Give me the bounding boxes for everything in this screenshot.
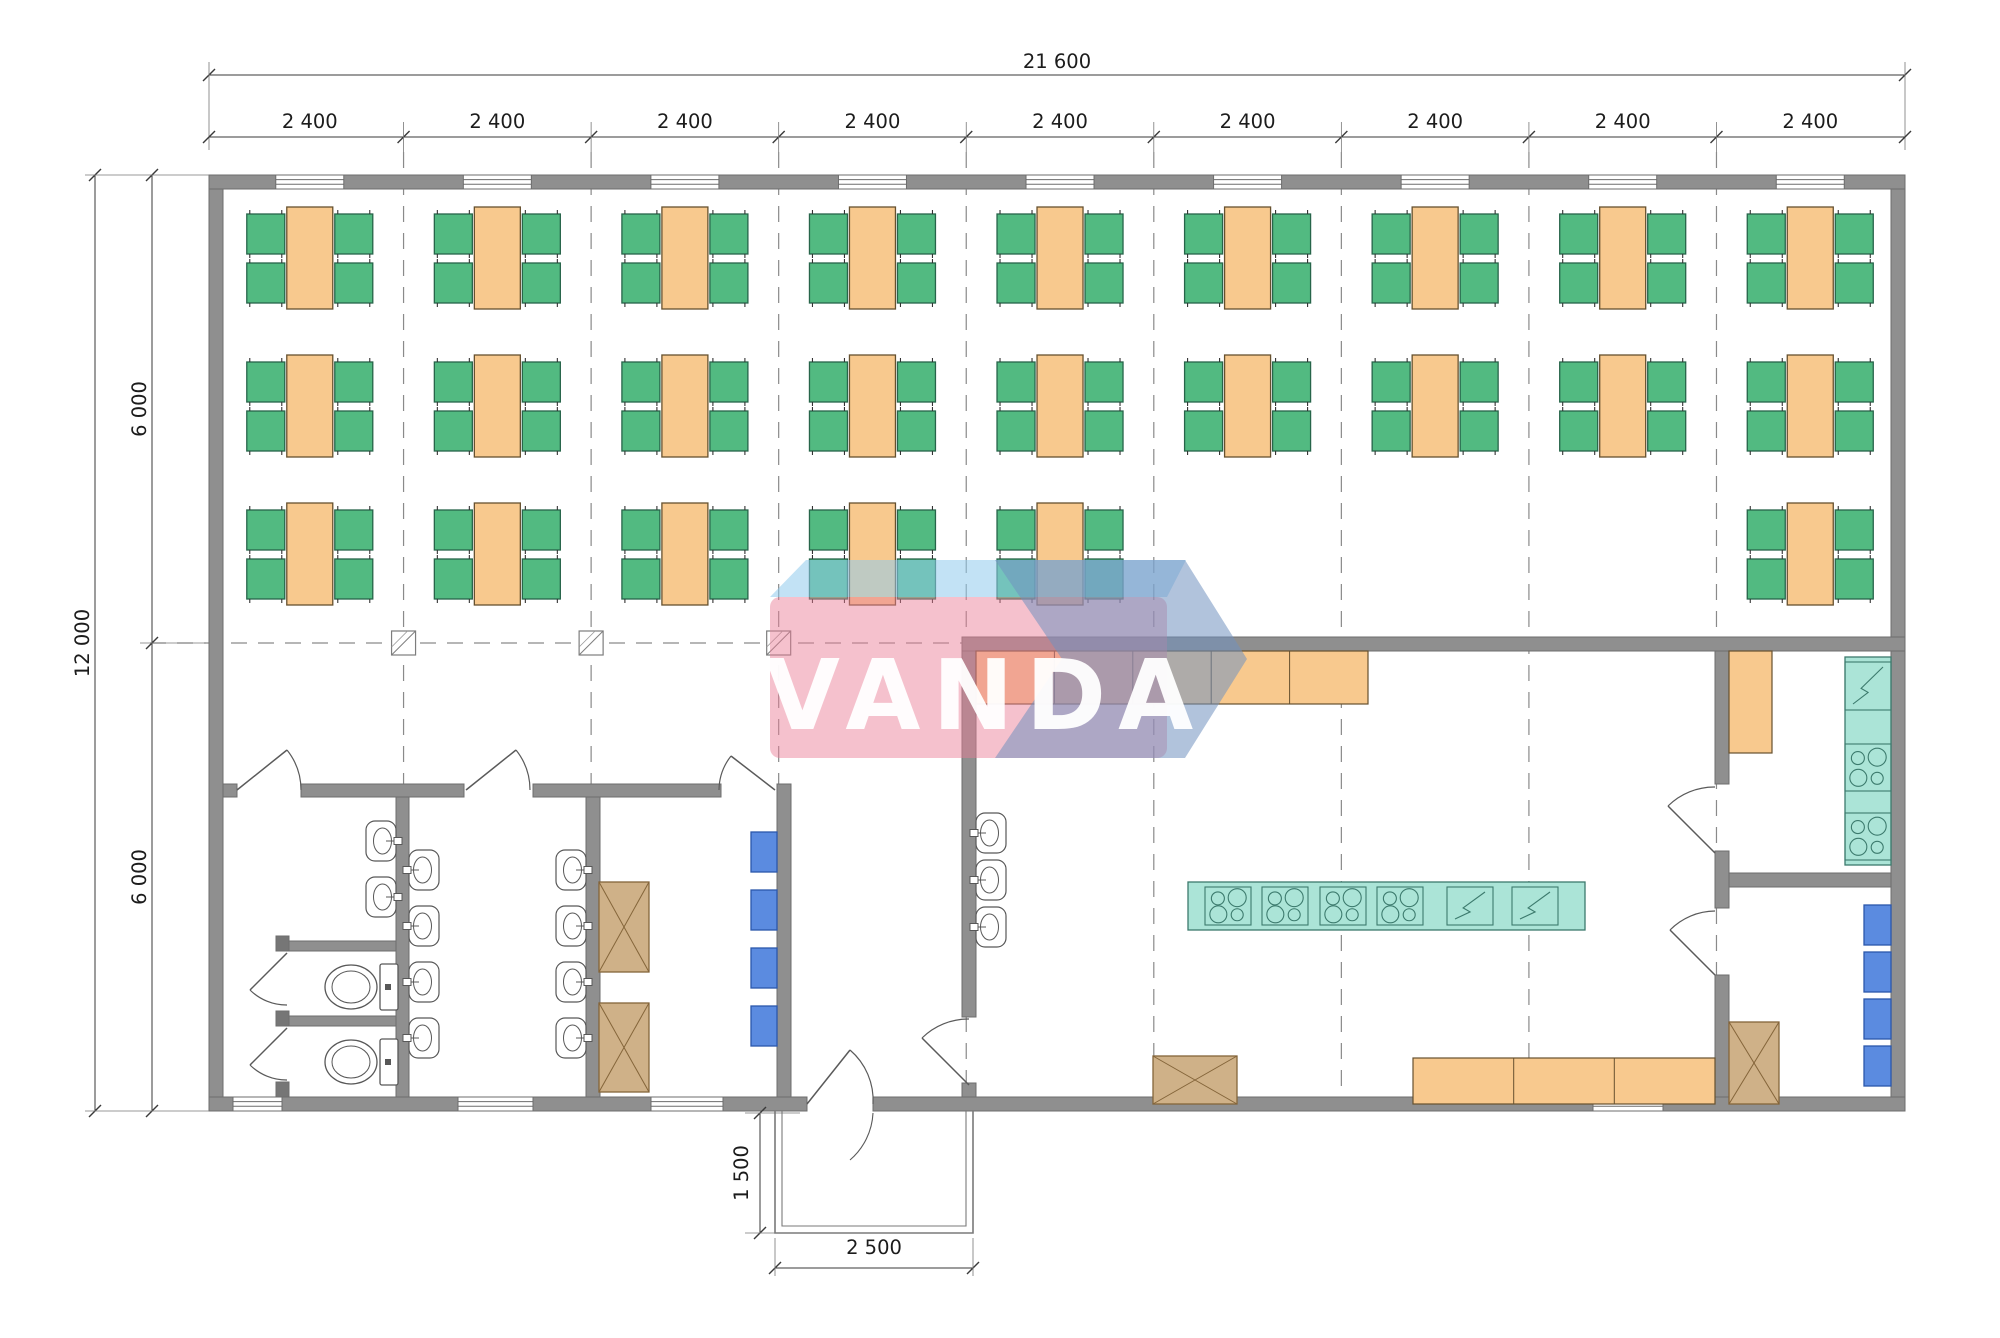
locker-icon (751, 948, 777, 988)
sink-faucet (403, 1035, 411, 1042)
chair-icon (1273, 214, 1311, 254)
door-leaf (250, 1028, 287, 1065)
sink-faucet (403, 979, 411, 986)
chair-icon (522, 510, 560, 550)
chair-icon (710, 263, 748, 303)
wall (282, 1016, 396, 1026)
chair-icon (997, 214, 1035, 254)
chair-icon (1185, 411, 1223, 451)
dining-table (1600, 207, 1646, 309)
chair-icon (1835, 362, 1873, 402)
chair-icon (247, 214, 285, 254)
dim-bay-label: 2 400 (1595, 110, 1651, 133)
chair-icon (1273, 411, 1311, 451)
entrance-porch (775, 1111, 973, 1233)
chair-icon (335, 510, 373, 550)
door-frame-cap (276, 1082, 289, 1097)
chair-icon (1747, 510, 1785, 550)
dim-bay-label: 2 400 (1407, 110, 1463, 133)
chair-icon (1560, 411, 1598, 451)
dim-lower-height: 6 000 (128, 849, 151, 905)
floor-plan-svg: 21 600 12 000 6 000 6 000 1 500 2 500 2 … (0, 0, 2000, 1338)
locker-icon (1864, 905, 1891, 945)
wall (223, 784, 237, 797)
dim-bay-label: 2 400 (469, 110, 525, 133)
chair-icon (897, 510, 935, 550)
door-frame-cap (276, 1011, 289, 1026)
chair-icon (1560, 362, 1598, 402)
dining-table (1787, 207, 1833, 309)
dining-table (1600, 355, 1646, 457)
chair-icon (1747, 411, 1785, 451)
chair-icon (434, 411, 472, 451)
sink-faucet (970, 830, 978, 837)
chair-icon (1185, 362, 1223, 402)
chair-icon (809, 214, 847, 254)
wall (209, 189, 223, 1097)
chair-icon (1835, 559, 1873, 599)
dining-table (662, 355, 708, 457)
locker-icon (751, 832, 777, 872)
toilet-flush (385, 1059, 391, 1065)
window (458, 1097, 533, 1111)
dim-bay-label: 2 400 (1220, 110, 1276, 133)
dim-upper-height: 6 000 (128, 381, 151, 437)
wall (282, 941, 396, 951)
door-leaf (1668, 806, 1715, 853)
dining-table (1225, 355, 1271, 457)
door-leaf (466, 750, 516, 790)
chair-icon (335, 263, 373, 303)
window (233, 1097, 282, 1111)
door-swing-arc (850, 1113, 873, 1160)
chair-icon (710, 214, 748, 254)
chair-icon (1372, 263, 1410, 303)
chair-icon (710, 411, 748, 451)
dining-table (1037, 503, 1083, 605)
dining-table (849, 207, 895, 309)
chair-icon (335, 214, 373, 254)
chair-icon (1747, 559, 1785, 599)
wall (962, 637, 1905, 651)
chair-icon (434, 510, 472, 550)
toilet-flush (385, 984, 391, 990)
chair-icon (809, 559, 847, 599)
chair-icon (809, 510, 847, 550)
chair-icon (710, 510, 748, 550)
chair-icon (1085, 362, 1123, 402)
dining-table (1412, 355, 1458, 457)
plumbing-fixtures (325, 813, 1006, 1085)
door-leaf (731, 756, 775, 790)
dining-table (287, 355, 333, 457)
door-swing-arc (1668, 787, 1715, 806)
chair-icon (1085, 559, 1123, 599)
chair-icon (1085, 214, 1123, 254)
dining-table (287, 503, 333, 605)
chair-icon (335, 559, 373, 599)
dining-table (287, 207, 333, 309)
chair-icon (622, 510, 660, 550)
dining-table (1037, 207, 1083, 309)
dining-table (662, 503, 708, 605)
chair-icon (1085, 411, 1123, 451)
dim-bay-label: 2 400 (657, 110, 713, 133)
chair-icon (997, 411, 1035, 451)
chair-icon (522, 559, 560, 599)
chair-icon (1273, 362, 1311, 402)
chair-icon (622, 263, 660, 303)
dim-bay-label: 2 400 (1032, 110, 1088, 133)
chair-icon (997, 510, 1035, 550)
chair-icon (809, 263, 847, 303)
dim-total-height: 12 000 (71, 609, 94, 677)
sink-faucet (403, 867, 411, 874)
chair-icon (247, 263, 285, 303)
wall (586, 797, 600, 1097)
chair-icon (1747, 362, 1785, 402)
sink-faucet (970, 877, 978, 884)
sink-faucet (394, 894, 402, 901)
chair-icon (1648, 411, 1686, 451)
dim-porch-width: 2 500 (846, 1236, 902, 1259)
chair-icon (434, 559, 472, 599)
locker-icon (1864, 1046, 1891, 1086)
toilet-bowl (325, 1040, 377, 1084)
window (1214, 175, 1282, 189)
door-swing-arc (850, 1050, 873, 1104)
locker-icon (751, 1006, 777, 1046)
locker-icon (751, 890, 777, 930)
porch-outline-inner (782, 1111, 966, 1226)
chair-icon (434, 362, 472, 402)
window (276, 175, 344, 189)
kitchen-island (1188, 882, 1585, 930)
chair-icon (1560, 214, 1598, 254)
door-swing-arc (922, 1019, 969, 1038)
wall (1729, 873, 1891, 887)
door-leaf (807, 1050, 850, 1104)
sink-faucet (584, 979, 592, 986)
chair-icon (247, 362, 285, 402)
window (1776, 175, 1844, 189)
sink-faucet (584, 1035, 592, 1042)
chair-icon (522, 362, 560, 402)
door-leaf (250, 953, 287, 990)
chair-icon (1372, 362, 1410, 402)
dining-table (1412, 207, 1458, 309)
chair-icon (1648, 263, 1686, 303)
chair-icon (1835, 510, 1873, 550)
base-counter (1413, 1058, 1715, 1104)
chair-icon (434, 263, 472, 303)
door-swing-arc (1670, 911, 1715, 930)
dim-total-width: 21 600 (1023, 50, 1091, 73)
wall (301, 784, 464, 797)
porch-outline (775, 1111, 973, 1233)
dining-table (849, 355, 895, 457)
door-swing-arc (250, 1065, 287, 1080)
dining-table (474, 503, 520, 605)
chair-icon (997, 559, 1035, 599)
dining-table (1037, 355, 1083, 457)
sink-faucet (403, 923, 411, 930)
wall (962, 637, 976, 1017)
chair-icon (1085, 510, 1123, 550)
sink-faucet (584, 867, 592, 874)
door-leaf (237, 750, 287, 790)
door-swing-arc (516, 750, 530, 790)
sink-faucet (970, 924, 978, 931)
chair-icon (1747, 214, 1785, 254)
chair-icon (522, 263, 560, 303)
window (463, 175, 531, 189)
chair-icon (1460, 214, 1498, 254)
chair-icon (1648, 362, 1686, 402)
dim-bay-label: 2 400 (1782, 110, 1838, 133)
chair-icon (997, 362, 1035, 402)
chair-icon (1185, 214, 1223, 254)
window (1026, 175, 1094, 189)
chair-icon (1747, 263, 1785, 303)
door-leaf (1670, 930, 1715, 975)
chair-icon (1835, 214, 1873, 254)
dining-table (1787, 503, 1833, 605)
chair-icon (434, 214, 472, 254)
chair-icon (997, 263, 1035, 303)
chair-icon (1372, 214, 1410, 254)
chair-icon (809, 411, 847, 451)
wall (1715, 851, 1729, 908)
door-swing-arc (250, 990, 287, 1005)
dining-table (1787, 355, 1833, 457)
furniture (247, 207, 1891, 1104)
chair-icon (622, 214, 660, 254)
dining-table (474, 207, 520, 309)
chair-icon (622, 559, 660, 599)
window (651, 175, 719, 189)
side-counter (1729, 651, 1772, 753)
chair-icon (897, 559, 935, 599)
dim-bay-label: 2 400 (845, 110, 901, 133)
dining-table (1225, 207, 1271, 309)
chair-icon (247, 559, 285, 599)
sink-faucet (394, 838, 402, 845)
chair-icon (522, 214, 560, 254)
wall (962, 1083, 976, 1097)
window (838, 175, 906, 189)
wall (533, 784, 721, 797)
dining-table (662, 207, 708, 309)
chair-icon (897, 214, 935, 254)
chair-icon (897, 362, 935, 402)
locker-icon (1864, 952, 1891, 992)
chair-icon (897, 411, 935, 451)
chair-icon (622, 362, 660, 402)
door-leaf (922, 1038, 969, 1085)
toilet-bowl (325, 965, 377, 1009)
dim-bay-label: 2 400 (282, 110, 338, 133)
chair-icon (247, 510, 285, 550)
chair-icon (335, 362, 373, 402)
chair-icon (1560, 263, 1598, 303)
window (651, 1097, 723, 1111)
window (1589, 175, 1657, 189)
wall (777, 784, 791, 1097)
chair-icon (335, 411, 373, 451)
chair-icon (1372, 411, 1410, 451)
locker-icon (1864, 999, 1891, 1039)
wall (1715, 651, 1729, 784)
chair-icon (897, 263, 935, 303)
dim-porch-depth: 1 500 (730, 1145, 753, 1201)
chair-icon (622, 411, 660, 451)
door-swing-arc (287, 750, 301, 790)
serving-counter (976, 651, 1368, 704)
chair-icon (1460, 411, 1498, 451)
chair-icon (247, 411, 285, 451)
sink-faucet (584, 923, 592, 930)
chair-icon (710, 362, 748, 402)
walls (209, 175, 1905, 1111)
floor-plan-canvas: 21 600 12 000 6 000 6 000 1 500 2 500 2 … (0, 0, 2000, 1338)
chair-icon (1648, 214, 1686, 254)
chair-icon (1835, 263, 1873, 303)
chair-icon (1185, 263, 1223, 303)
dining-table (474, 355, 520, 457)
bay-dimension-labels: 2 4002 4002 4002 4002 4002 4002 4002 400… (282, 110, 1838, 133)
door-frame-cap (276, 936, 289, 951)
wall (1715, 975, 1729, 1097)
chair-icon (522, 411, 560, 451)
window (1401, 175, 1469, 189)
chair-icon (1460, 362, 1498, 402)
chair-icon (809, 362, 847, 402)
chair-icon (710, 559, 748, 599)
chair-icon (1460, 263, 1498, 303)
chair-icon (1835, 411, 1873, 451)
dining-table (849, 503, 895, 605)
chair-icon (1273, 263, 1311, 303)
chair-icon (1085, 263, 1123, 303)
